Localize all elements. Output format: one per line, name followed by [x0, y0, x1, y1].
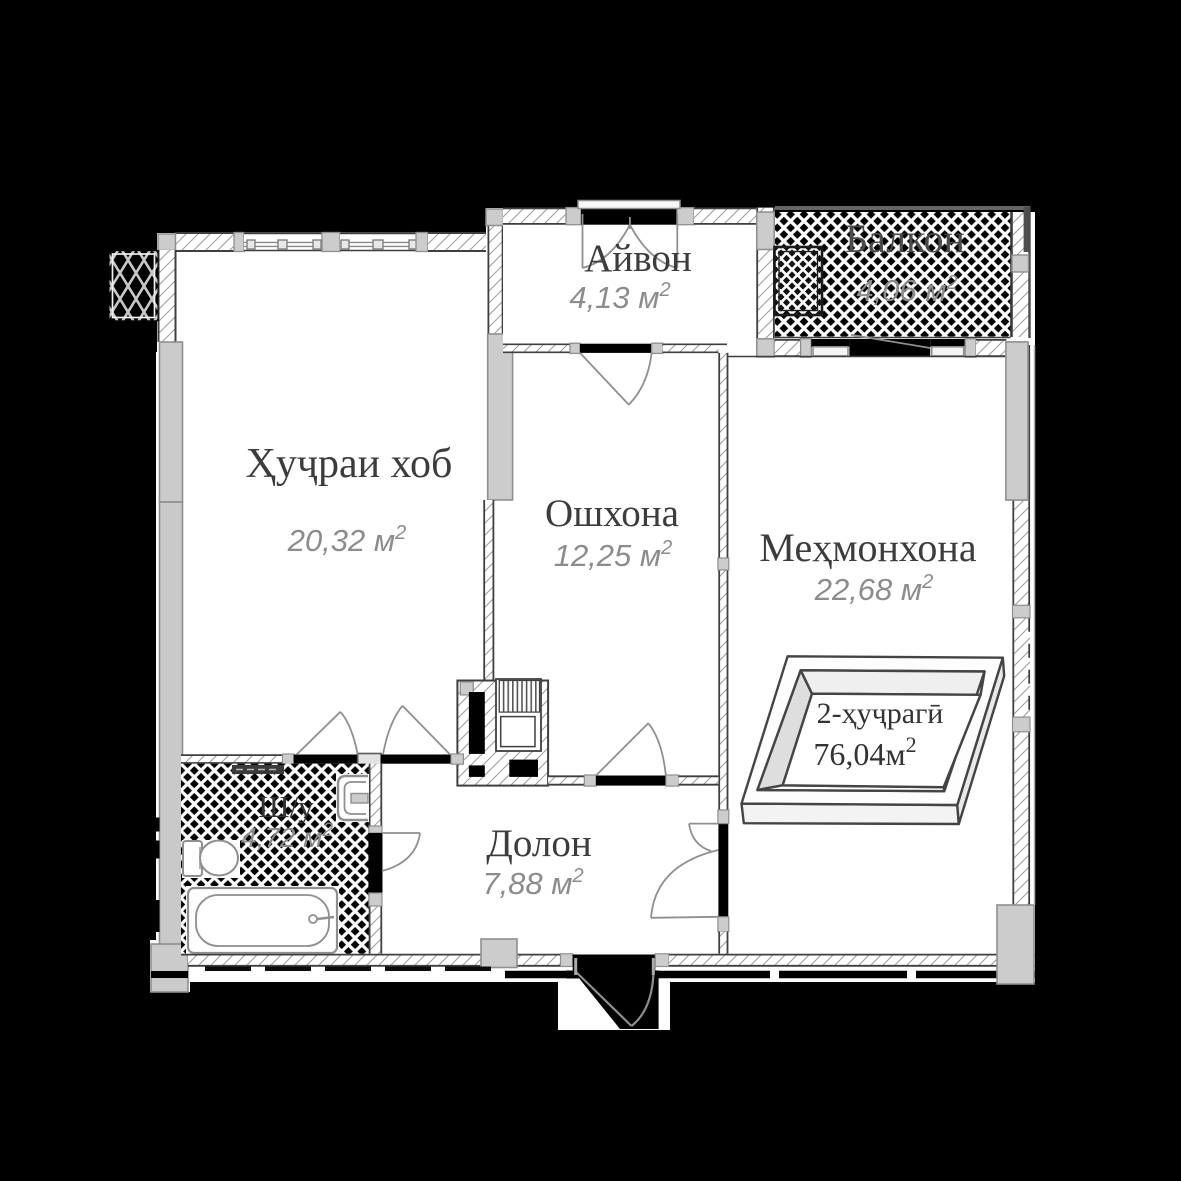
svg-text:Долон: Долон: [486, 822, 591, 865]
svg-text:76,04м2: 76,04м2: [813, 732, 916, 772]
svg-text:Меҳмонхона: Меҳмонхона: [759, 525, 976, 570]
svg-text:22,68 м2: 22,68 м2: [814, 571, 934, 607]
svg-text:4,06 м2: 4,06 м2: [856, 272, 957, 308]
svg-text:2-ҳуҷрагӣ: 2-ҳуҷрагӣ: [817, 697, 944, 730]
svg-text:Ошхона: Ошхона: [545, 492, 679, 535]
svg-text:12,25 м2: 12,25 м2: [554, 537, 673, 573]
svg-text:Айвон: Айвон: [584, 237, 692, 280]
svg-text:Ш/у: Ш/у: [258, 789, 314, 824]
svg-text:4,13 м2: 4,13 м2: [569, 279, 670, 315]
svg-text:4,72 м2: 4,72 м2: [241, 820, 333, 853]
svg-text:7,88 м2: 7,88 м2: [482, 865, 583, 901]
svg-text:20,32 м2: 20,32 м2: [287, 522, 407, 558]
svg-text:Ҳуҷраи хоб: Ҳуҷраи хоб: [246, 441, 453, 487]
svg-text:Балкон: Балкон: [845, 216, 965, 261]
